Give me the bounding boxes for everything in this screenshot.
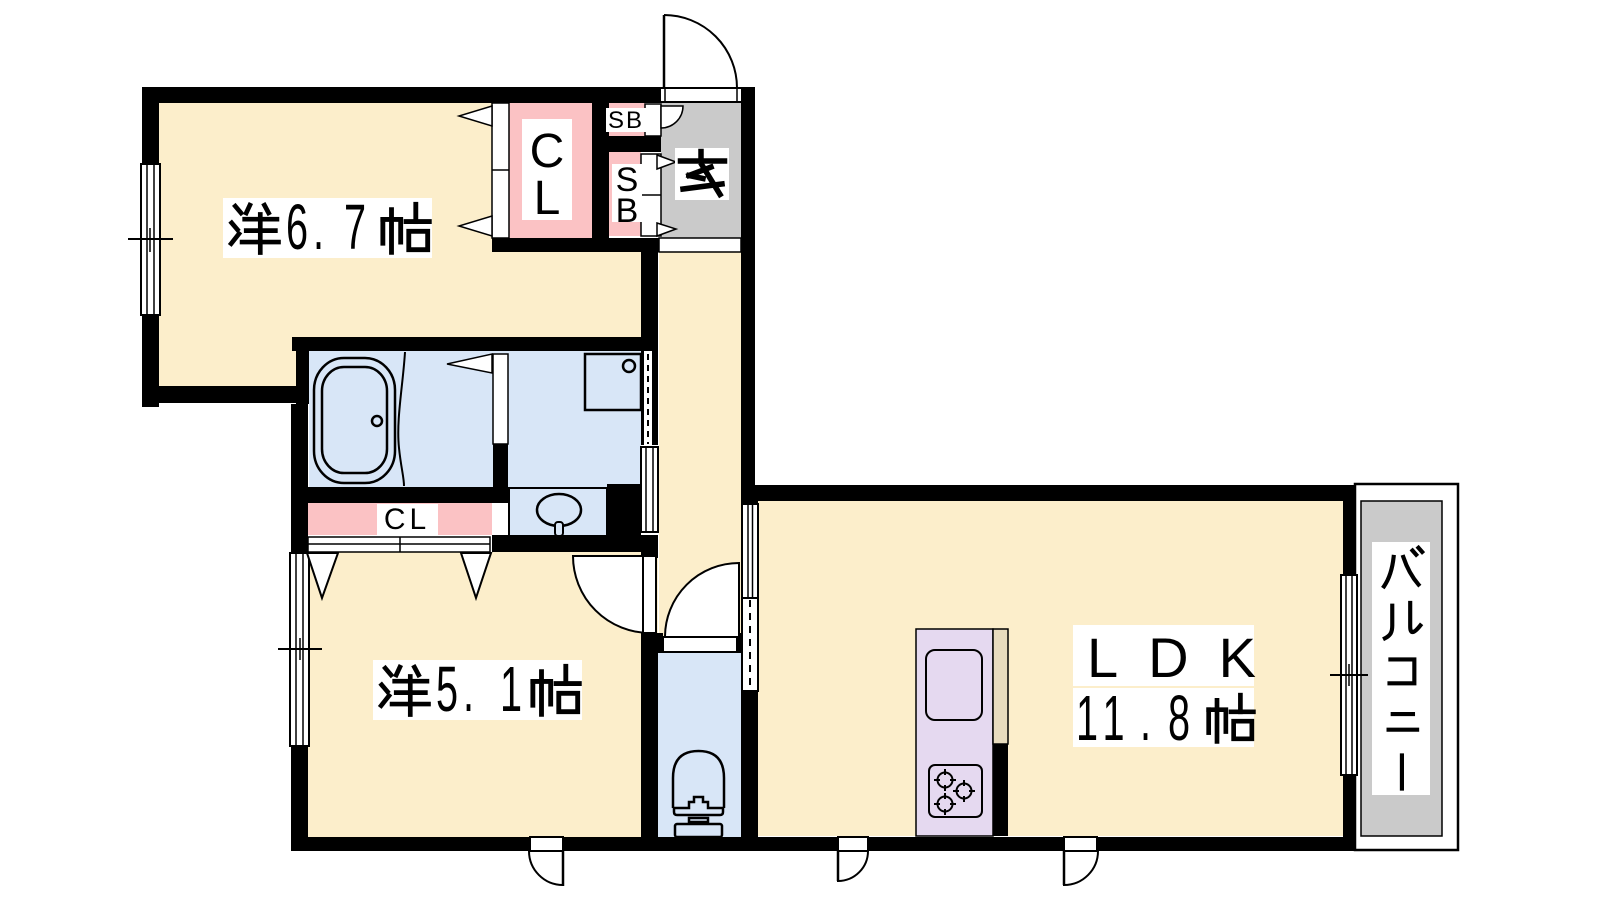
svg-text:SB: SB <box>608 107 644 134</box>
svg-text:B: B <box>616 192 639 230</box>
svg-text:.: . <box>1140 684 1151 755</box>
svg-text:5: 5 <box>436 655 458 726</box>
svg-text:11: 11 <box>1076 684 1132 755</box>
svg-text:C: C <box>530 125 565 178</box>
svg-text:L: L <box>534 172 561 225</box>
svg-text:.: . <box>463 655 474 726</box>
svg-text:.: . <box>313 193 324 264</box>
svg-text:1: 1 <box>500 655 522 726</box>
svg-text:CL: CL <box>384 503 430 536</box>
svg-text:8: 8 <box>1168 684 1190 755</box>
svg-text:7: 7 <box>344 193 366 264</box>
svg-text:LDK: LDK <box>1087 626 1286 689</box>
svg-text:6: 6 <box>286 193 308 264</box>
